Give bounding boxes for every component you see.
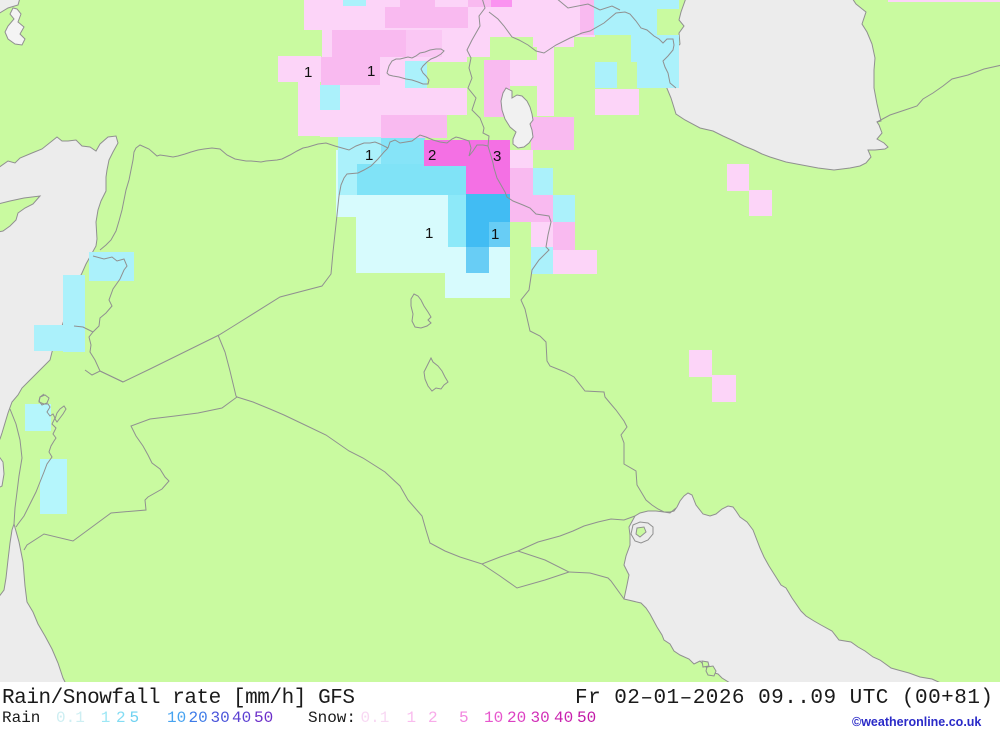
svg-text:Rain: Rain xyxy=(2,709,40,727)
svg-text:0.1: 0.1 xyxy=(56,709,85,727)
svg-text:1: 1 xyxy=(101,709,111,727)
svg-text:30: 30 xyxy=(531,709,550,727)
svg-text:2: 2 xyxy=(116,709,126,727)
svg-text:1: 1 xyxy=(365,147,373,164)
svg-text:40: 40 xyxy=(232,709,251,727)
svg-text:Rain/Snowfall rate [mm/h] GFS: Rain/Snowfall rate [mm/h] GFS xyxy=(2,687,355,710)
svg-text:10: 10 xyxy=(167,709,186,727)
svg-text:50: 50 xyxy=(254,709,273,727)
svg-text:20: 20 xyxy=(189,709,208,727)
svg-text:Fr 02–01–2026 09..09 UTC (00+8: Fr 02–01–2026 09..09 UTC (00+81) xyxy=(575,687,993,710)
svg-text:3: 3 xyxy=(493,148,501,165)
svg-text:5: 5 xyxy=(130,709,140,727)
svg-text:10: 10 xyxy=(484,709,503,727)
svg-text:1: 1 xyxy=(304,64,312,81)
svg-text:5: 5 xyxy=(459,709,469,727)
svg-text:0.1: 0.1 xyxy=(361,709,390,727)
svg-text:©weatheronline.co.uk: ©weatheronline.co.uk xyxy=(852,715,981,729)
svg-text:1: 1 xyxy=(407,709,417,727)
svg-text:1: 1 xyxy=(425,225,433,242)
svg-text:50: 50 xyxy=(577,709,596,727)
svg-text:2: 2 xyxy=(428,147,436,164)
svg-text:20: 20 xyxy=(507,709,526,727)
svg-text:30: 30 xyxy=(211,709,230,727)
svg-text:Snow:: Snow: xyxy=(308,709,356,727)
svg-text:1: 1 xyxy=(367,63,375,80)
svg-text:40: 40 xyxy=(554,709,573,727)
svg-text:2: 2 xyxy=(428,709,438,727)
svg-text:1: 1 xyxy=(491,226,499,243)
